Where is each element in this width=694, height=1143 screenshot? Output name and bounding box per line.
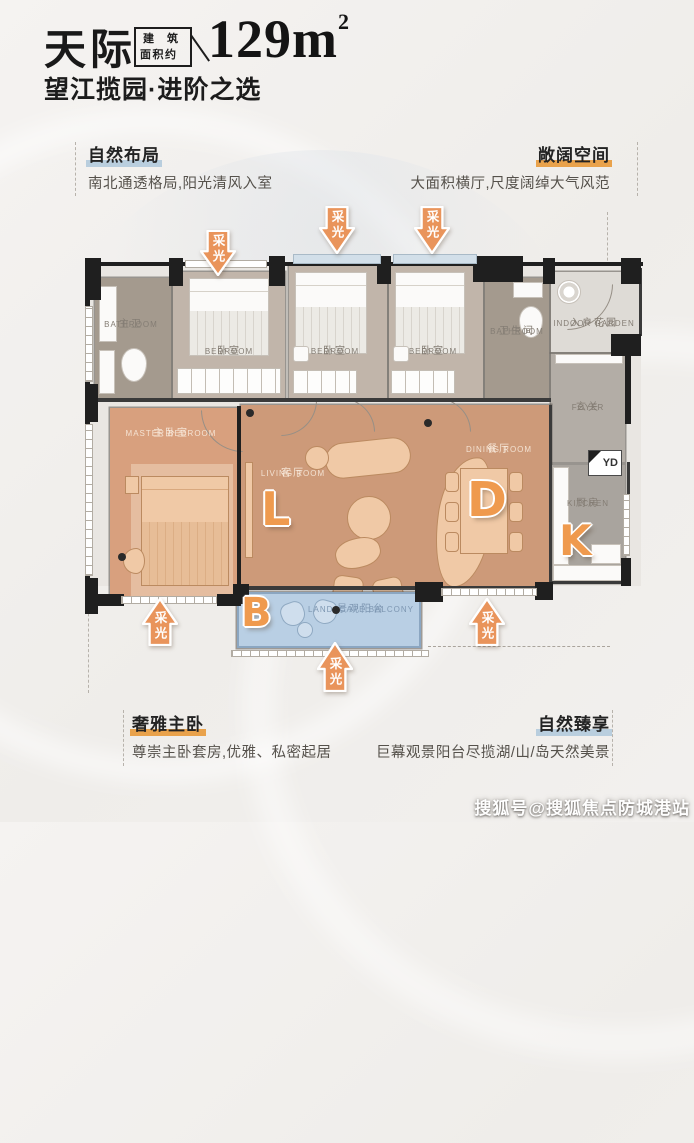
plan-dot	[332, 606, 340, 614]
wall	[627, 462, 630, 498]
wall-pier	[169, 258, 183, 286]
page-title: 天际	[44, 16, 136, 77]
balcony-table	[297, 622, 313, 638]
letter-kitchen: K	[559, 516, 592, 565]
wall	[549, 405, 552, 583]
sink	[513, 282, 543, 298]
nightstand	[125, 476, 139, 494]
bay-window	[393, 254, 477, 264]
wall	[237, 406, 241, 598]
wall-pier	[543, 258, 555, 284]
plan-dot	[424, 419, 432, 427]
area-superscript: 2	[338, 9, 350, 34]
yd-closet: YD	[588, 450, 622, 476]
wardrobe	[391, 370, 455, 394]
daylight-arrow: 采光	[319, 206, 355, 254]
dining-chair	[445, 532, 459, 552]
feature-desc: 南北通透格局,阳光清风入室	[88, 172, 273, 193]
feature-natural-layout: 自然布局 南北通透格局,阳光清风入室	[88, 141, 273, 193]
dining-chair	[509, 532, 523, 552]
feature-desc: 巨幕观景阳台尽揽湖/山/岛天然美景	[376, 741, 610, 762]
yd-label: YD	[603, 457, 618, 469]
daylight-arrow: 采光	[142, 598, 178, 646]
plan-dot	[118, 553, 126, 561]
divider-dash	[123, 710, 124, 766]
window	[85, 424, 93, 576]
dining-chair	[445, 472, 459, 492]
kitchen-counter	[553, 565, 623, 581]
side-table	[305, 446, 329, 470]
bed	[295, 272, 367, 354]
feature-spacious: 敞阔空间 大面积横厅,尺度阔绰大气风范	[410, 141, 610, 193]
feature-desc: 大面积横厅,尺度阔绰大气风范	[410, 172, 610, 193]
wall	[551, 581, 629, 584]
divider-dash	[75, 142, 76, 196]
stool	[123, 548, 145, 574]
fridge	[591, 544, 621, 564]
letter-dining: D	[467, 472, 507, 528]
letter-living: L	[261, 482, 290, 536]
divider-dash	[637, 142, 638, 196]
pouf	[347, 496, 391, 540]
dining-chair	[445, 502, 459, 522]
area-label-line2: 面积约	[139, 47, 187, 63]
feature-nature-enjoy: 自然臻享 巨幕观景阳台尽揽湖/山/岛天然美景	[376, 710, 610, 762]
area-label-line1: 建筑	[139, 31, 187, 47]
bay-window	[293, 254, 381, 264]
divider-dash	[612, 710, 613, 766]
feature-title: 自然布局	[88, 146, 160, 165]
plan-dot	[246, 409, 254, 417]
wall-pier	[621, 258, 641, 284]
feature-desc: 尊崇主卧套房,优雅、私密起居	[132, 741, 332, 762]
window	[623, 494, 630, 556]
feature-title: 奢雅主卧	[132, 715, 204, 734]
wall-pier	[415, 582, 443, 602]
feature-master-suite: 奢雅主卧 尊崇主卧套房,优雅、私密起居	[132, 710, 332, 762]
wall-pier	[621, 558, 631, 586]
window	[441, 588, 537, 596]
wall-pier	[85, 384, 98, 422]
feature-title: 自然臻享	[538, 715, 610, 734]
letter-balcony: B	[241, 590, 272, 636]
master-bed	[141, 476, 229, 586]
wall-pier	[269, 256, 285, 286]
bathtub	[99, 350, 115, 394]
decor-slash	[190, 34, 210, 61]
wardrobe	[293, 370, 357, 394]
daylight-arrow: 采光	[200, 230, 236, 276]
fan-icon	[393, 346, 409, 362]
wall-pier	[473, 256, 523, 282]
wardrobe	[177, 368, 281, 394]
wall	[625, 352, 631, 424]
sink-counter	[99, 286, 117, 342]
wall-pier	[85, 578, 98, 614]
daylight-arrow: 采光	[317, 642, 353, 692]
area-label-box: 建筑 面积约	[134, 27, 192, 67]
watermark: 搜狐号@搜狐焦点防城港站	[474, 794, 690, 819]
page-subtitle: 望江揽园·进阶之选	[44, 70, 261, 106]
window	[85, 306, 93, 382]
area-value: 129m2	[208, 8, 350, 70]
dining-chair	[509, 502, 523, 522]
wall	[95, 398, 551, 402]
tv-cabinet	[245, 462, 253, 558]
daylight-arrow: 采光	[414, 206, 450, 254]
dining-chair	[509, 472, 523, 492]
wall-pier	[535, 582, 553, 600]
bed	[395, 272, 465, 354]
feature-title: 敞阔空间	[538, 146, 610, 165]
daylight-arrow: 采光	[469, 598, 505, 646]
bed	[189, 278, 269, 356]
fan-icon	[293, 346, 309, 362]
room-foyer	[551, 354, 625, 462]
